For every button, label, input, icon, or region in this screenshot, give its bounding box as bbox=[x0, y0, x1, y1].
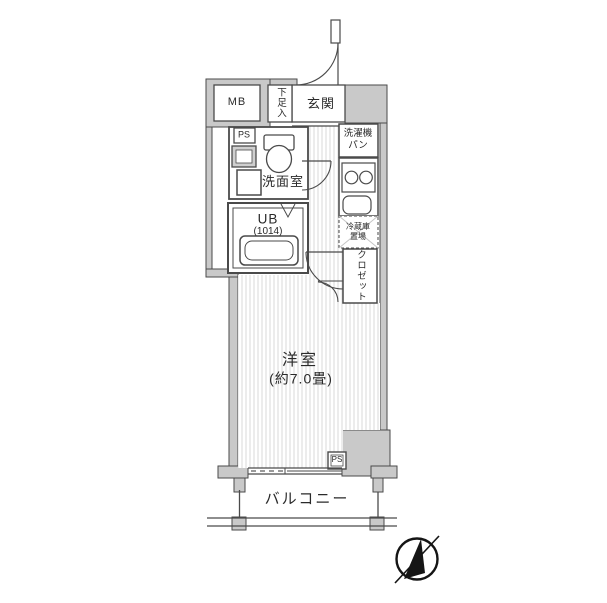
unit-bath-size-label: (1014) bbox=[254, 226, 283, 239]
main-room-label: 洋室 bbox=[282, 351, 318, 371]
wall-left-stub bbox=[234, 478, 245, 492]
main-room-floor-right bbox=[343, 303, 380, 430]
washer-pan-label: 洗濯機 パン bbox=[344, 128, 373, 152]
fridge-space-label: 冷蔵庫 置場 bbox=[346, 222, 370, 242]
stove bbox=[342, 163, 375, 192]
meterbox-label: MB bbox=[228, 96, 247, 110]
shaft-box-inner bbox=[236, 150, 252, 163]
balcony-right-post bbox=[370, 517, 384, 530]
pipe-space-lower-label: PS bbox=[332, 455, 343, 465]
closet-label: クロゼット bbox=[354, 250, 366, 303]
wall-left-upper bbox=[206, 127, 212, 269]
shoe-cabinet-label: 下足入 bbox=[274, 87, 286, 119]
balcony-left-post bbox=[232, 517, 246, 530]
wall-top-right-block bbox=[345, 85, 387, 123]
entrance-door bbox=[296, 20, 340, 85]
wall-left-lower bbox=[229, 277, 238, 468]
washroom-label: 洗面室 bbox=[262, 174, 304, 190]
compass-icon bbox=[395, 536, 439, 583]
bathtub bbox=[240, 236, 298, 265]
wall-right-foot bbox=[371, 466, 397, 478]
toilet bbox=[264, 135, 294, 173]
washbasin bbox=[237, 170, 261, 195]
floor-plan: MB 下足入 玄関 PS 洗面室 洗濯機 パン UB (1014) 冷蔵庫 置場… bbox=[0, 0, 607, 603]
entrance-label: 玄関 bbox=[307, 96, 335, 112]
balcony-label: バルコニー bbox=[265, 491, 350, 510]
wall-right-stub bbox=[373, 478, 383, 492]
pipe-space-upper-label: PS bbox=[238, 129, 250, 140]
main-room-size-label: (約7.0畳) bbox=[269, 370, 333, 388]
floor-plan-drawing bbox=[0, 0, 607, 603]
kitchen-sink bbox=[343, 196, 371, 214]
hallway-floor-lower bbox=[308, 249, 343, 275]
wall-right bbox=[380, 123, 387, 435]
